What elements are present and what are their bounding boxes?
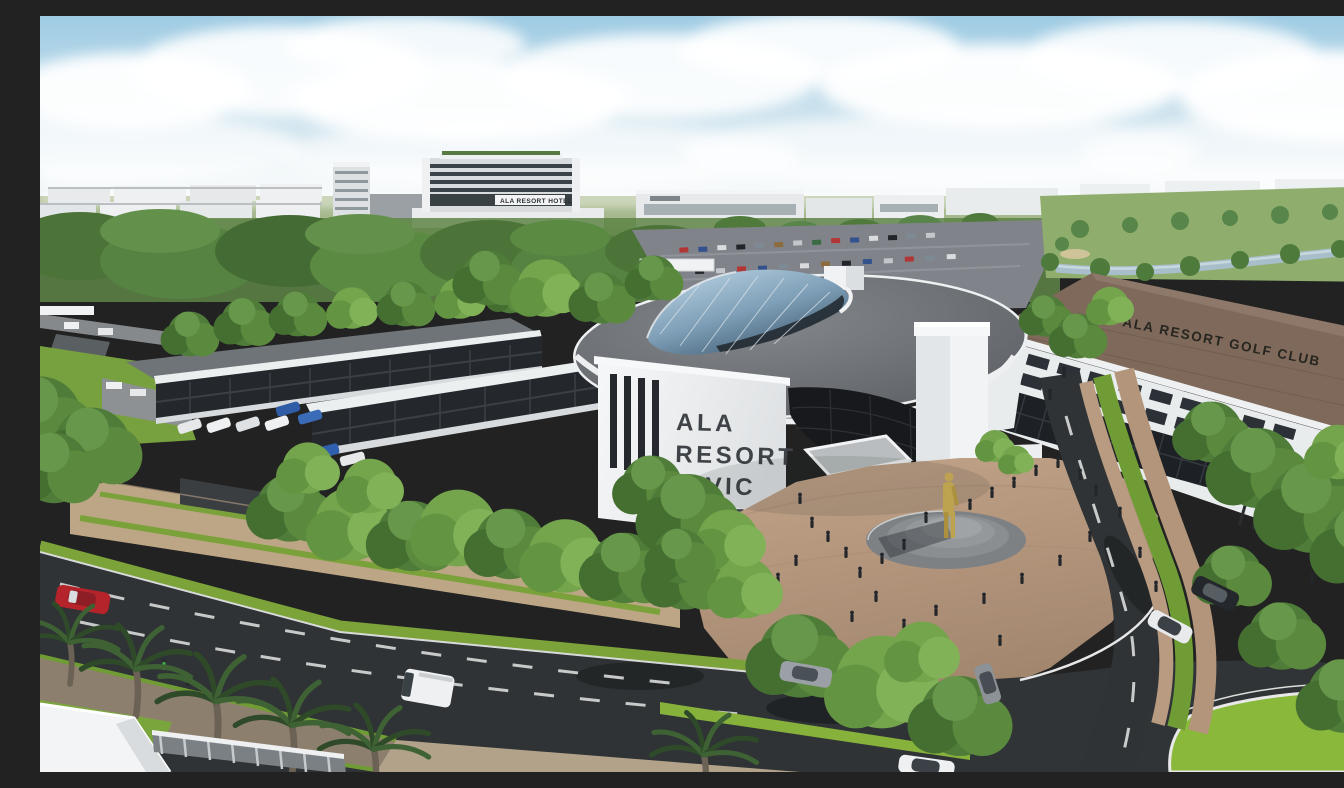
hotel-building: ALA RESORT HOTEL [412, 151, 604, 228]
white-wall [40, 306, 94, 315]
golf-course [1040, 186, 1344, 282]
civic-sign-line1: ALA [676, 409, 737, 438]
architectural-rendering: ALA RESORT HOTEL [40, 16, 1344, 772]
hotel-sign: ALA RESORT HOTEL [500, 198, 572, 205]
